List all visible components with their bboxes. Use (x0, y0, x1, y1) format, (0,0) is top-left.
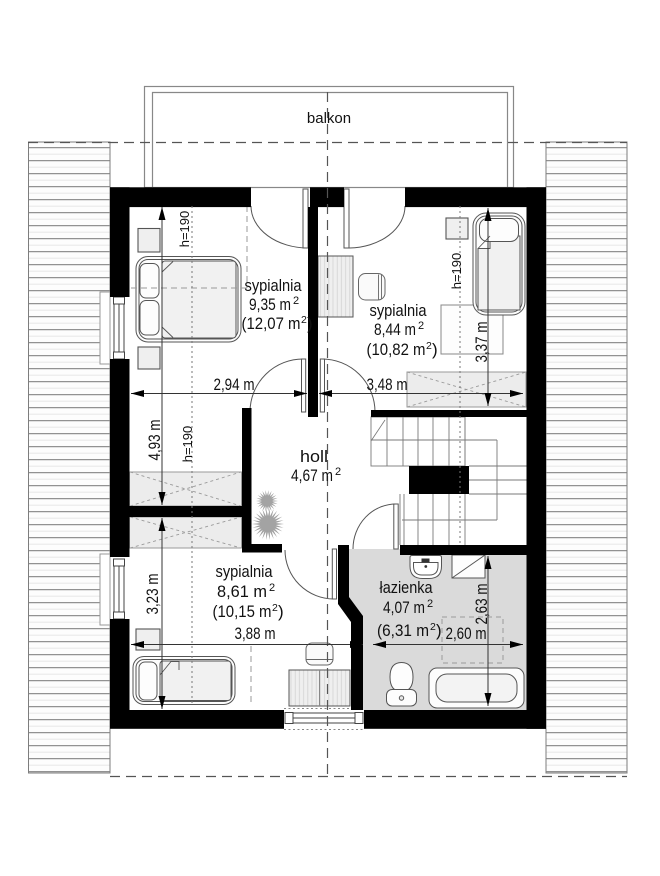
svg-text:): ) (436, 621, 442, 640)
svg-text:2: 2 (335, 466, 341, 478)
svg-text:3,88 m: 3,88 m (235, 624, 276, 643)
svg-text:): ) (432, 340, 438, 359)
svg-text:3,48 m: 3,48 m (367, 375, 408, 394)
svg-text:holl: holl (300, 447, 328, 466)
svg-text:4,07 m: 4,07 m (383, 598, 425, 617)
svg-text:3,37 m: 3,37 m (472, 322, 491, 363)
svg-text:sypialnia: sypialnia (370, 301, 427, 320)
svg-text:balkon: balkon (307, 110, 351, 127)
svg-text:2,94 m: 2,94 m (214, 375, 255, 394)
svg-text:): ) (307, 314, 313, 333)
svg-text:łazienka: łazienka (380, 578, 433, 597)
svg-text:(6,31 m: (6,31 m (377, 621, 429, 640)
svg-text:2: 2 (293, 295, 299, 307)
svg-text:4,93 m: 4,93 m (145, 420, 164, 461)
svg-text:8,44 m: 8,44 m (374, 320, 416, 339)
svg-text:h=190: h=190 (177, 211, 192, 248)
svg-text:4,67 m: 4,67 m (291, 466, 333, 485)
svg-text:h=190: h=190 (449, 253, 464, 290)
svg-text:2: 2 (269, 582, 275, 594)
svg-text:h=190: h=190 (180, 426, 195, 463)
svg-text:3,23 m: 3,23 m (143, 574, 162, 615)
svg-text:): ) (278, 602, 284, 621)
svg-text:9,35 m: 9,35 m (249, 295, 291, 314)
svg-text:sypialnia: sypialnia (216, 562, 273, 581)
svg-text:(10,82 m: (10,82 m (367, 340, 426, 359)
svg-text:2: 2 (427, 598, 433, 610)
svg-text:2: 2 (418, 320, 424, 332)
svg-text:(10,15 m: (10,15 m (213, 602, 272, 621)
svg-text:8,61 m: 8,61 m (217, 582, 267, 601)
svg-text:sypialnia: sypialnia (245, 276, 302, 295)
svg-text:2,60 m: 2,60 m (446, 624, 487, 643)
svg-text:2,63 m: 2,63 m (472, 584, 491, 625)
svg-text:(12,07 m: (12,07 m (242, 314, 301, 333)
